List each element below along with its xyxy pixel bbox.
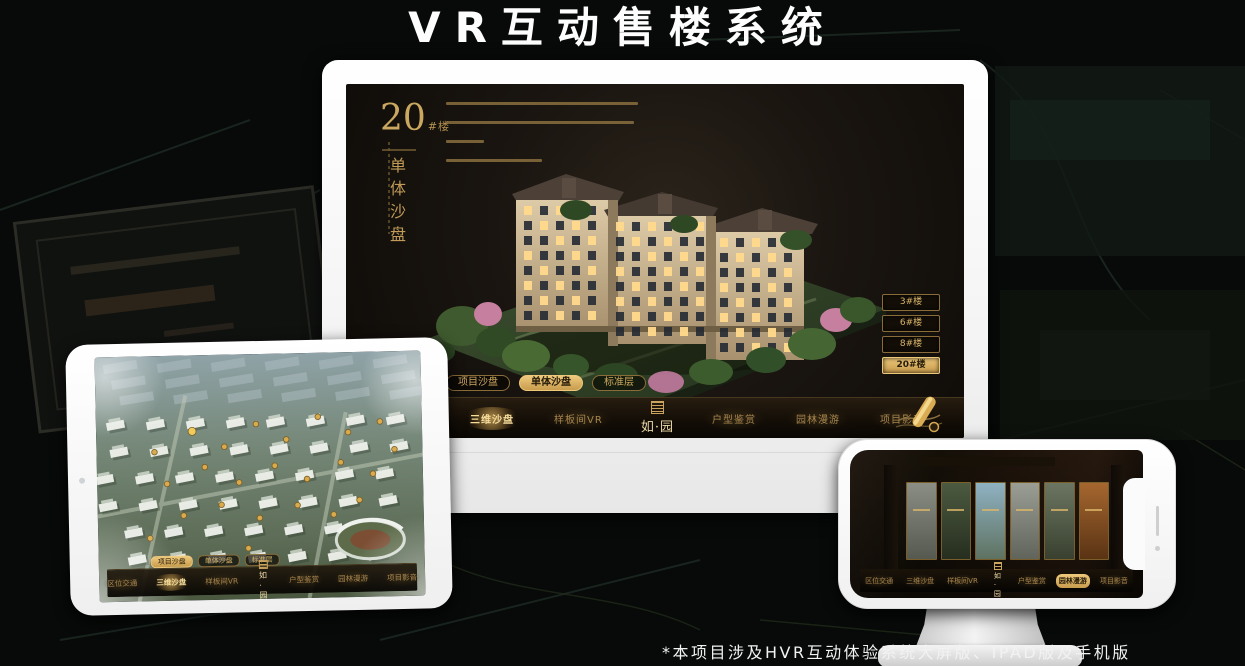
phone-nav-showroom-vr[interactable]: 样板间VR bbox=[944, 574, 981, 588]
tablet-nav-3d-sandbox[interactable]: 三维沙盘 bbox=[152, 573, 190, 591]
scroll-end-left-icon bbox=[850, 571, 855, 589]
scroll-ornament-icon[interactable] bbox=[894, 395, 946, 435]
phone-navbar: 区位交通 三维沙盘 样板间VR 如·园 户型鉴赏 园林漫游 项目影音 bbox=[860, 569, 1133, 592]
floor-button-6[interactable]: 6#楼 bbox=[882, 315, 940, 332]
tablet-nav-garden-roam[interactable]: 园林漫游 bbox=[334, 570, 372, 588]
tablet-screen: 项目沙盘 单体沙盘 标准层 区位交通 三维沙盘 样板间VR 如·园 户型鉴赏 园… bbox=[94, 351, 425, 603]
phone-device: 区位交通 三维沙盘 样板间VR 如·园 户型鉴赏 园林漫游 项目影音 bbox=[838, 439, 1176, 609]
pillar-shape bbox=[884, 465, 898, 583]
seal-icon bbox=[259, 560, 268, 569]
gate-beam-shape bbox=[920, 457, 1055, 466]
scene-panel[interactable] bbox=[1010, 482, 1041, 560]
phone-speaker-slot bbox=[1156, 506, 1159, 536]
phone-nav-3d-sandbox[interactable]: 三维沙盘 bbox=[903, 574, 937, 588]
subtab-standard-floor[interactable]: 标准层 bbox=[592, 375, 646, 391]
phone-notch bbox=[1123, 478, 1145, 570]
page-title: VR互动售楼系统 bbox=[0, 0, 1245, 56]
phone-camera-dot bbox=[1155, 546, 1160, 551]
scene-panel[interactable] bbox=[906, 482, 937, 560]
tablet-device: 项目沙盘 单体沙盘 标准层 区位交通 三维沙盘 样板间VR 如·园 户型鉴赏 园… bbox=[65, 337, 453, 616]
nav-showroom-vr[interactable]: 样板间VR bbox=[546, 407, 611, 430]
subtab-single-sandbox[interactable]: 单体沙盘 bbox=[519, 375, 583, 391]
tablet-subtab-single-sandbox[interactable]: 单体沙盘 bbox=[198, 554, 240, 567]
phone-screen: 区位交通 三维沙盘 样板间VR 如·园 户型鉴赏 园林漫游 项目影音 bbox=[850, 450, 1143, 598]
subtab-project-sandbox[interactable]: 项目沙盘 bbox=[446, 375, 510, 391]
tablet-nav-location-traffic[interactable]: 区位交通 bbox=[103, 574, 141, 592]
phone-nav-location-traffic[interactable]: 区位交通 bbox=[862, 574, 896, 588]
tablet-camera-dot bbox=[79, 477, 85, 483]
phone-nav-project-media[interactable]: 项目影音 bbox=[1097, 574, 1131, 588]
scene-gallery bbox=[906, 482, 1109, 560]
footnote: *本项目涉及HVR互动体验系统大屏版、IPAD版及手机版 bbox=[662, 639, 1131, 663]
floor-button-8[interactable]: 8#楼 bbox=[882, 336, 940, 353]
tablet-brand-logo: 如·园 bbox=[259, 560, 269, 601]
sandbox-subtabs: 项目沙盘 单体沙盘 标准层 bbox=[446, 375, 646, 391]
phone-nav-garden-roam[interactable]: 园林漫游 bbox=[1056, 574, 1090, 588]
scene-panel[interactable] bbox=[941, 482, 972, 560]
scroll-end-right-icon bbox=[1138, 571, 1143, 589]
floor-button-3[interactable]: 3#楼 bbox=[882, 294, 940, 311]
nav-unit-appreciation[interactable]: 户型鉴赏 bbox=[704, 407, 764, 430]
tablet-subtab-project-sandbox[interactable]: 项目沙盘 bbox=[151, 555, 193, 568]
seal-icon bbox=[994, 562, 1002, 570]
phone-brand-logo: 如·园 bbox=[994, 562, 1002, 598]
floor-button-20[interactable]: 20#楼 bbox=[882, 357, 940, 374]
nav-garden-roam[interactable]: 园林漫游 bbox=[788, 407, 848, 430]
brand-logo: 如·园 bbox=[641, 401, 674, 435]
seal-icon bbox=[651, 401, 664, 414]
scene-panel[interactable] bbox=[1044, 482, 1075, 560]
scene-panel[interactable] bbox=[975, 482, 1006, 560]
nav-3d-sandbox[interactable]: 三维沙盘 bbox=[462, 407, 522, 430]
tablet-nav-showroom-vr[interactable]: 样板间VR bbox=[201, 572, 242, 590]
scene-panel[interactable] bbox=[1079, 482, 1110, 560]
floor-button-group: 3#楼 6#楼 8#楼 20#楼 bbox=[882, 294, 940, 374]
tablet-nav-project-media[interactable]: 项目影音 bbox=[383, 569, 421, 587]
page: VR互动售楼系统 20#楼 单体沙盘 bbox=[0, 0, 1245, 666]
phone-nav-unit-appreciation[interactable]: 户型鉴赏 bbox=[1015, 574, 1049, 588]
tablet-nav-unit-appreciation[interactable]: 户型鉴赏 bbox=[285, 571, 323, 589]
